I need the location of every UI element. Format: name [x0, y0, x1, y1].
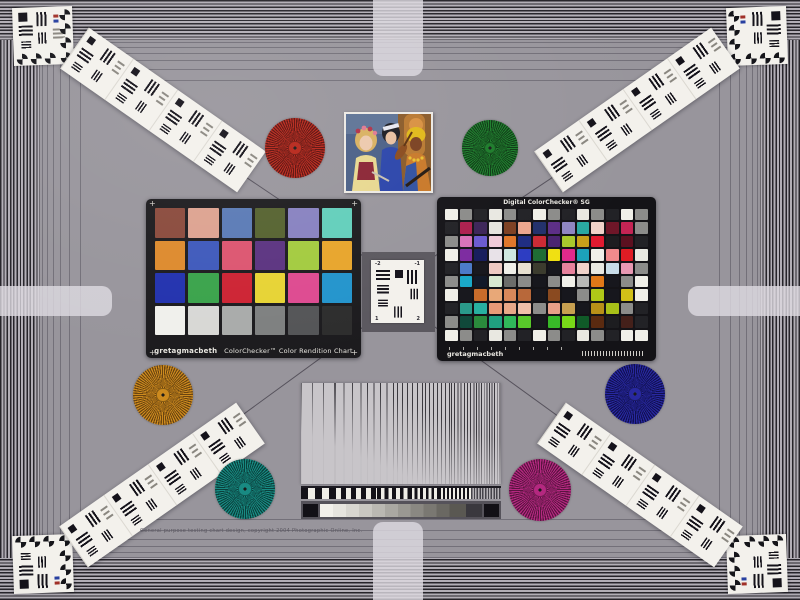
- quadrant-fan-mark: [15, 537, 26, 548]
- bar-triplet: [21, 41, 31, 49]
- quadrant-fan-mark: [59, 9, 70, 20]
- bar-triplet: [217, 417, 234, 435]
- color-patch: [445, 316, 458, 327]
- bar-triplet: [36, 12, 47, 26]
- color-patch: [155, 273, 185, 303]
- color-patch: [222, 306, 252, 336]
- color-patch: [155, 208, 185, 238]
- quadrant-fan-mark: [772, 535, 783, 546]
- color-patch: [518, 222, 531, 233]
- color-patch: [548, 236, 561, 247]
- color-patch: [474, 249, 487, 260]
- camera-test-chart: + + + + gretagmacbeth ColorChecker™ Colo…: [0, 0, 800, 600]
- micro-text: [622, 104, 629, 109]
- colorchecker-brand: gretagmacbeth: [154, 347, 217, 355]
- bar-triplet: [208, 438, 226, 455]
- color-patch: [606, 263, 619, 274]
- bar-triplet: [595, 125, 613, 142]
- bar-triplet: [376, 270, 390, 281]
- color-patch: [606, 330, 619, 341]
- red-chip: [740, 15, 745, 18]
- corner-mark: +: [149, 201, 156, 207]
- bar-triplet: [686, 515, 704, 532]
- red-chip: [55, 581, 60, 584]
- color-patch: [635, 303, 648, 314]
- color-patch: [591, 316, 604, 327]
- bar-triplet: [378, 300, 388, 308]
- black-square: [219, 129, 229, 139]
- color-patch: [621, 209, 634, 220]
- quadrant-fan-mark: [60, 550, 71, 561]
- color-patch: [591, 303, 604, 314]
- bar-triplet: [203, 154, 215, 166]
- bar-triplet: [641, 484, 659, 501]
- black-square: [773, 578, 782, 587]
- color-patch: [606, 303, 619, 314]
- color-patch: [288, 306, 318, 336]
- bar-triplet: [173, 448, 190, 466]
- bar-triplet: [700, 537, 713, 550]
- color-patch: [460, 303, 473, 314]
- color-patch: [577, 330, 590, 341]
- color-patch: [591, 330, 604, 341]
- bar-triplet: [71, 61, 83, 73]
- fine-print: General purpose testing chart design, co…: [140, 528, 400, 534]
- blue-chip: [741, 577, 746, 580]
- colorchecker-24-chart: + + + + gretagmacbeth ColorChecker™ Colo…: [146, 199, 361, 358]
- bar-triplet: [560, 135, 577, 153]
- micro-text: [106, 514, 113, 520]
- color-patch: [222, 273, 252, 303]
- bar-triplet: [100, 48, 117, 66]
- bar-triplet: [86, 545, 98, 557]
- micro-text: [194, 452, 201, 458]
- gray-gradient: [320, 504, 482, 517]
- star-center-dot: [628, 387, 641, 400]
- resolution-strip-topleft: [60, 28, 266, 193]
- color-patch: [548, 209, 561, 220]
- siemens-star-blue: [605, 364, 665, 424]
- blue-chip: [53, 19, 58, 22]
- color-patch: [577, 276, 590, 287]
- color-patch: [548, 330, 561, 341]
- star-center-dot: [156, 388, 169, 401]
- color-patch: [489, 263, 502, 274]
- quadrant-fan-mark: [746, 53, 757, 64]
- bar-triplet: [604, 104, 621, 122]
- bar-triplet: [769, 40, 779, 48]
- color-patch: [460, 316, 473, 327]
- color-patch: [591, 263, 604, 274]
- bar-triplet: [692, 42, 709, 60]
- bar-triplet: [394, 306, 403, 317]
- micro-text: [117, 60, 124, 66]
- bar-triplet: [592, 467, 604, 479]
- bar-triplet: [164, 469, 182, 486]
- bar-triplet: [621, 454, 638, 472]
- color-patch: [288, 208, 318, 238]
- color-patch: [460, 236, 473, 247]
- bar-triplet: [767, 24, 781, 35]
- micro-text: [156, 100, 163, 106]
- sg-tick-marks: [449, 347, 569, 350]
- color-patch: [474, 316, 487, 327]
- siemens-star-green: [462, 120, 518, 176]
- quadrant-fan-mark: [728, 11, 739, 22]
- micro-text: [633, 475, 640, 481]
- color-patch: [504, 289, 517, 300]
- bar-triplet: [120, 500, 138, 517]
- bar-triplet: [21, 552, 31, 560]
- frequency-sweep-chart: [301, 383, 501, 484]
- color-patch: [635, 289, 648, 300]
- bar-triplet: [145, 498, 158, 511]
- color-patch: [489, 330, 502, 341]
- color-patch: [562, 222, 575, 233]
- micro-text: [159, 95, 166, 100]
- color-patch: [445, 236, 458, 247]
- color-patch: [621, 330, 634, 341]
- quadrant-fan-mark: [60, 37, 71, 48]
- black-square: [608, 442, 618, 452]
- color-patch: [621, 236, 634, 247]
- center-usaf-card: -2 -1 1 2: [371, 260, 424, 323]
- color-patch: [635, 236, 648, 247]
- color-patch: [445, 209, 458, 220]
- micro-text: [191, 448, 198, 453]
- micro-text: [244, 162, 251, 168]
- bar-triplet: [120, 78, 138, 95]
- micro-text: [592, 440, 599, 445]
- color-patch: [548, 276, 561, 287]
- star-center-dot: [484, 142, 496, 154]
- color-patch: [504, 263, 517, 274]
- micro-text: [239, 421, 246, 427]
- color-patch: [188, 208, 218, 238]
- color-patch: [504, 249, 517, 260]
- bar-triplet: [769, 551, 779, 559]
- micro-text: [680, 501, 687, 506]
- color-patch: [562, 316, 575, 327]
- color-patch: [606, 249, 619, 260]
- color-patch: [155, 241, 185, 271]
- bar-triplet: [175, 483, 187, 495]
- color-patch: [504, 209, 517, 220]
- quadrant-fan-mark: [31, 53, 42, 64]
- color-patch: [518, 303, 531, 314]
- color-patch: [322, 306, 352, 336]
- micro-text: [578, 135, 585, 140]
- micro-text: [200, 131, 207, 137]
- star-center-dot: [288, 141, 301, 154]
- sg-grid: [445, 209, 648, 341]
- color-patch: [445, 263, 458, 274]
- color-patch: [606, 316, 619, 327]
- color-patch: [489, 276, 502, 287]
- color-patch: [621, 276, 634, 287]
- color-patch: [288, 273, 318, 303]
- black-end-square: [484, 504, 499, 517]
- color-patch: [445, 289, 458, 300]
- bar-triplet: [753, 556, 762, 568]
- bar-triplet: [188, 110, 205, 128]
- color-patch: [474, 303, 487, 314]
- color-patch: [548, 249, 561, 260]
- bar-triplet: [597, 453, 615, 470]
- color-patch: [533, 249, 546, 260]
- color-patch: [460, 209, 473, 220]
- color-patch: [533, 209, 546, 220]
- three-musicians-photo: [346, 114, 431, 191]
- bar-triplet: [709, 61, 722, 74]
- color-patch: [504, 276, 517, 287]
- black-square: [631, 87, 641, 97]
- color-patch: [322, 208, 352, 238]
- black-square: [112, 493, 122, 503]
- micro-text: [112, 69, 119, 75]
- color-patch: [562, 303, 575, 314]
- bar-triplet: [665, 485, 682, 503]
- blue-chip: [54, 576, 59, 579]
- siemens-star-teal: [215, 459, 275, 519]
- color-patch: [518, 316, 531, 327]
- bar-triplet: [190, 467, 203, 480]
- color-patch: [577, 236, 590, 247]
- color-patch: [562, 330, 575, 341]
- quadrant-fan-mark: [729, 39, 740, 50]
- quadrant-fan-mark: [17, 54, 28, 65]
- black-square: [696, 504, 706, 514]
- bar-triplet: [19, 564, 33, 575]
- color-patch: [504, 330, 517, 341]
- color-patch: [606, 289, 619, 300]
- black-square: [68, 524, 78, 534]
- resolution-strip-topright: [534, 28, 740, 193]
- color-patch: [621, 303, 634, 314]
- frequency-bar-strip: [301, 486, 501, 499]
- bar-triplet: [751, 12, 762, 26]
- bar-triplet: [164, 109, 182, 126]
- colorchecker-grid: [155, 208, 352, 335]
- color-patch: [504, 316, 517, 327]
- bar-triplet: [577, 423, 594, 441]
- micro-text: [236, 417, 243, 422]
- corner-resolution-card: [12, 534, 74, 594]
- color-patch: [504, 222, 517, 233]
- edge-tab-right: [688, 286, 800, 316]
- bar-triplet: [620, 123, 633, 136]
- bar-triplet: [553, 422, 571, 439]
- black-square: [156, 462, 166, 472]
- micro-text: [594, 435, 601, 441]
- bar-triplet: [19, 25, 33, 36]
- color-patch: [591, 289, 604, 300]
- micro-text: [581, 139, 588, 145]
- black-end-square: [303, 504, 318, 517]
- color-patch: [322, 273, 352, 303]
- color-patch: [621, 249, 634, 260]
- color-patch: [188, 306, 218, 336]
- quadrant-fan-mark: [60, 564, 71, 575]
- bar-triplet: [752, 574, 763, 588]
- color-patch: [577, 289, 590, 300]
- bar-triplet: [561, 170, 573, 182]
- micro-text: [247, 157, 254, 162]
- bar-triplet: [91, 69, 104, 82]
- color-patch: [460, 289, 473, 300]
- micro-text: [162, 91, 169, 97]
- color-patch: [606, 276, 619, 287]
- quadrant-fan-mark: [43, 536, 54, 547]
- colorchecker-caption: gretagmacbeth ColorChecker™ Color Rendit…: [146, 347, 361, 355]
- micro-text: [669, 77, 676, 83]
- corner-resolution-card: [12, 6, 74, 66]
- quadrant-fan-mark: [60, 23, 71, 34]
- micro-text: [724, 532, 731, 537]
- color-patch: [533, 303, 546, 314]
- color-patch: [591, 222, 604, 233]
- color-patch: [155, 306, 185, 336]
- usaf-label: 2: [417, 316, 420, 322]
- bar-triplet: [101, 529, 114, 542]
- bar-triplet: [38, 32, 47, 44]
- micro-text: [666, 73, 673, 78]
- color-patch: [460, 330, 473, 341]
- color-patch: [635, 276, 648, 287]
- black-square: [652, 473, 662, 483]
- bar-triplet: [76, 47, 94, 64]
- color-patch: [188, 241, 218, 271]
- color-patch: [518, 249, 531, 260]
- bar-triplet: [129, 479, 146, 497]
- color-patch: [504, 303, 517, 314]
- color-patch: [635, 222, 648, 233]
- quadrant-fan-mark: [758, 536, 769, 547]
- siemens-star-magenta: [509, 459, 571, 521]
- bar-triplet: [179, 131, 192, 144]
- black-square: [563, 411, 573, 421]
- bar-segment: [341, 488, 377, 499]
- color-patch: [445, 222, 458, 233]
- color-patch: [621, 222, 634, 233]
- black-square: [395, 270, 403, 278]
- bar-triplet: [683, 63, 701, 80]
- color-patch: [577, 303, 590, 314]
- quadrant-fan-mark: [774, 52, 785, 63]
- corner-mark: +: [351, 201, 358, 207]
- color-patch: [635, 316, 648, 327]
- blue-chip: [740, 20, 745, 23]
- bar-triplet: [223, 162, 236, 175]
- color-patch: [489, 249, 502, 260]
- sweep-contrast-fade: [301, 383, 501, 484]
- color-patch: [518, 236, 531, 247]
- photo-print: [344, 112, 433, 193]
- micro-text: [150, 483, 157, 489]
- black-square: [20, 580, 29, 589]
- quadrant-fan-mark: [729, 566, 740, 577]
- bar-triplet: [551, 156, 569, 173]
- color-patch: [474, 209, 487, 220]
- color-patch: [591, 276, 604, 287]
- color-patch: [518, 330, 531, 341]
- bar-triplet: [767, 563, 781, 574]
- bar-triplet: [135, 100, 148, 113]
- sg-brand: gretagmacbeth: [447, 350, 503, 358]
- bar-triplet: [131, 514, 143, 526]
- bar-triplet: [639, 94, 657, 111]
- micro-text: [721, 537, 728, 543]
- color-patch: [255, 306, 285, 336]
- quadrant-fan-mark: [730, 580, 741, 591]
- black-square: [543, 149, 553, 159]
- color-patch: [562, 276, 575, 287]
- color-patch: [635, 263, 648, 274]
- color-patch: [474, 263, 487, 274]
- corner-resolution-card: [726, 6, 788, 66]
- color-patch: [562, 249, 575, 260]
- quadrant-fan-mark: [760, 53, 771, 64]
- color-patch: [577, 209, 590, 220]
- color-patch: [222, 241, 252, 271]
- color-patch: [474, 276, 487, 287]
- color-patch: [188, 273, 218, 303]
- bar-triplet: [612, 475, 625, 488]
- color-patch: [606, 222, 619, 233]
- bar-triplet: [76, 531, 94, 548]
- color-patch: [577, 316, 590, 327]
- black-square: [175, 98, 185, 108]
- color-patch: [489, 303, 502, 314]
- colorchecker-label: ColorChecker™ Color Rendition Chart: [224, 347, 353, 355]
- color-patch: [255, 241, 285, 271]
- color-patch: [460, 276, 473, 287]
- micro-text: [206, 122, 213, 128]
- color-patch: [460, 222, 473, 233]
- color-patch: [635, 249, 648, 260]
- bar-triplet: [648, 73, 665, 91]
- bar-triplet: [576, 154, 589, 167]
- bar-triplet: [232, 141, 249, 159]
- black-square: [771, 11, 780, 20]
- color-patch: [635, 330, 648, 341]
- sg-title: Digital ColorChecker® SG: [437, 199, 656, 206]
- color-patch: [562, 263, 575, 274]
- color-patch: [533, 289, 546, 300]
- bar-triplet: [115, 92, 127, 104]
- star-center-dot: [533, 483, 547, 497]
- color-patch: [533, 222, 546, 233]
- bar-triplet: [665, 92, 678, 105]
- bar-triplet: [680, 529, 692, 541]
- quadrant-fan-mark: [61, 578, 72, 589]
- color-patch: [489, 316, 502, 327]
- bar-triplet: [159, 123, 171, 135]
- black-square: [18, 13, 27, 22]
- bar-triplet: [37, 574, 48, 588]
- bar-triplet: [606, 139, 618, 151]
- bar-segment: [439, 488, 471, 499]
- color-patch: [518, 263, 531, 274]
- bar-triplet: [410, 289, 418, 300]
- micro-text: [711, 42, 718, 47]
- color-patch: [621, 263, 634, 274]
- quadrant-fan-mark: [729, 552, 740, 563]
- micro-text: [683, 497, 690, 503]
- bar-segment: [301, 488, 341, 499]
- color-patch: [518, 209, 531, 220]
- bar-triplet: [144, 79, 161, 97]
